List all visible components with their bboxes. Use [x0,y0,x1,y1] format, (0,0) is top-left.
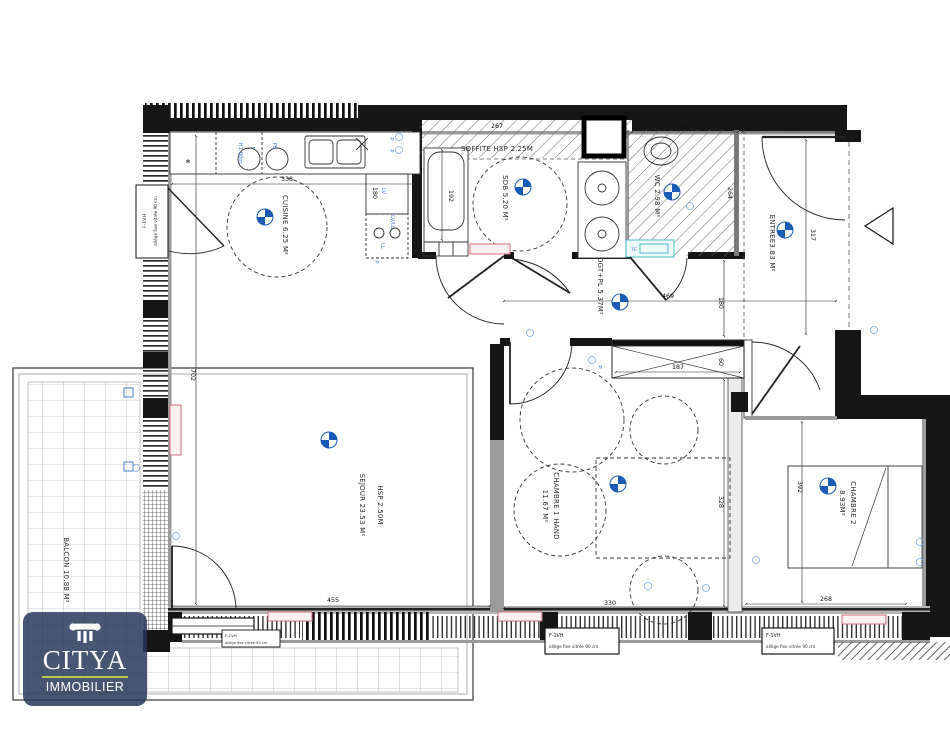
logo-tagline-text: IMMOBILIER [46,680,125,696]
turning-circle [473,157,567,251]
exterior-walls [143,103,950,660]
sejour-door-swing [436,256,504,324]
radiator [842,615,886,624]
label-hood: H1.80m [237,143,243,164]
label-te: TE [630,247,637,253]
window-desc-label: allège fixe vitrée 90 cm [549,644,598,649]
dim-corridor: 469 [662,293,674,300]
window-type-label: F-1VH [142,214,148,228]
logo-brand-text: CITYA [43,647,128,674]
dim-top-wall: 267 [491,123,503,130]
dim-bath: 192 [447,190,454,202]
room-label-wc: WC 2.98 M² [653,175,661,218]
dim-entree-side: 317 [809,229,816,241]
room-label-chambre2: CHAMBRE 2 [849,481,857,525]
duct-shaft [584,118,624,156]
level-marker [612,294,628,310]
window-desc-label: allège fixe vitrée 90 cm [153,196,158,245]
room-label-sejour-hsp: HSP 2.50M [376,485,384,525]
entrance-door-swing [762,137,845,220]
dim-placard-w: 187 [672,364,684,371]
kitchen-counter [170,132,420,174]
window-type-label: F-1VH [225,633,237,638]
room-label-balcon: BALCON 10.88 M² [62,537,70,602]
dim-wc-side: 264 [726,187,733,199]
balcony-door-swing [172,546,236,610]
room-label-chambre2-area: 8.93M² [838,490,846,516]
label-pb: PB [271,143,277,150]
turning-circle [227,177,327,277]
window-desc-label: allège fixe vitrée 90 cm [225,641,268,645]
window-desc-label: allège fixe vitrée 90 cm [766,644,815,649]
dim-sejour-bottom: 455 [327,597,339,604]
level-marker [777,222,793,238]
washer-slot [366,214,408,258]
room-label-sejour: SEJOUR 23.53 M² [358,474,366,537]
room-label-entree: ENTREE3.83 M² [768,215,776,272]
room-labels: CUISINE 6.25 M² SDB 5.20 M² WC 2.98 M² S… [281,145,857,540]
dim-lv: 180 [371,187,378,199]
bathtub [424,148,468,242]
chambre1-door-swing [510,342,572,404]
symbol-asterisk: * [186,158,191,169]
room-label-chambre1: CHAMBRE 1 HAND [552,472,560,539]
radiator [268,612,312,621]
level-marker [257,209,273,225]
window-type-label: F-1VH [766,633,781,639]
double-washbasin [578,162,626,258]
room-label-soffite: SOFFITE HSP 2.25M [461,145,533,153]
level-markers [257,179,836,494]
radiator [170,405,181,455]
level-marker [610,476,626,492]
dim-wc-top: 159 [678,124,690,131]
entrance-arrow-icon [865,208,893,244]
kitchen-fixtures [170,132,420,277]
label-ll: LL [379,243,385,249]
bed-chambre1 [596,458,730,558]
room-label-sdb: SDB 5.20 M² [501,175,509,221]
logo-citya: CITYA IMMOBILIER [23,612,147,706]
wc-door-leaf [630,257,666,300]
dim-placard-d: 60 [717,358,724,366]
room-label-cuisine: CUISINE 6.25 M² [281,195,289,255]
level-marker [820,478,836,494]
level-marker [664,184,680,200]
dim-entree-top: 121 [784,124,796,131]
dim-corridor-width: 180 [717,297,724,309]
chambre2-door-leaf [752,346,800,414]
dim-cuisine-width: 338 [281,176,293,183]
radiator [470,244,510,254]
room-label-degagement: DGT+PL 5.37M² [596,257,604,315]
dim-ch2-side: 392 [796,481,803,493]
dim-ch2-bottom: 268 [820,596,832,603]
label-p: P [373,260,379,264]
level-marker [321,432,337,448]
column-icon [68,622,102,644]
label-f: F [249,146,255,149]
logo-underline [42,676,128,678]
floor-plan-page: BALCON 10.88 M² [0,0,950,733]
dim-ch1-bottom: 330 [604,600,616,607]
label-lvll: LV/LL [389,215,395,229]
sdb-door-leaf [512,258,570,293]
window-type-label: F-1VH [549,633,564,639]
label-p: P [596,365,602,369]
dim-ch1-side: 328 [717,496,724,508]
room-label-chambre1-area: 11.67 M² [541,490,549,523]
dim-sejour-side: 702 [189,369,196,381]
radiator [498,612,542,621]
label-lv: LV [380,188,386,194]
level-marker [515,179,531,195]
